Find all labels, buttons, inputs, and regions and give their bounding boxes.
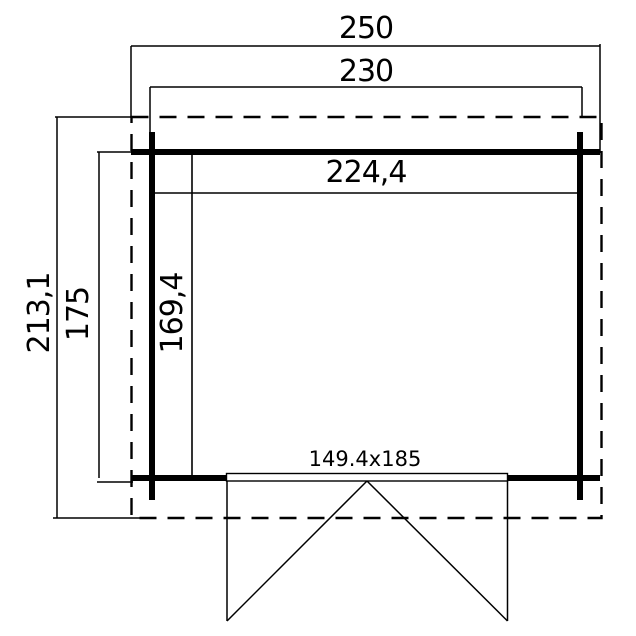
door-leaf-right-swing <box>367 481 508 621</box>
door-leaf-left-swing <box>227 481 367 621</box>
dimension-wall-depth <box>97 152 133 482</box>
door-size-label: 149.4x185 <box>285 449 445 470</box>
door-frame <box>227 474 508 482</box>
outer-depth-label: 213,1 <box>23 243 57 383</box>
wall-width-label: 230 <box>296 57 436 87</box>
wall-depth-label: 175 <box>62 244 96 384</box>
inner-width-label: 224,4 <box>296 158 436 188</box>
inner-depth-label: 169,4 <box>156 243 190 383</box>
outer-width-label: 250 <box>296 14 436 44</box>
floor-plan-canvas: 250 230 224,4 213,1 175 169,4 149.4x185 <box>0 0 636 636</box>
double-door <box>227 474 508 622</box>
dimension-wall-width <box>150 87 582 134</box>
